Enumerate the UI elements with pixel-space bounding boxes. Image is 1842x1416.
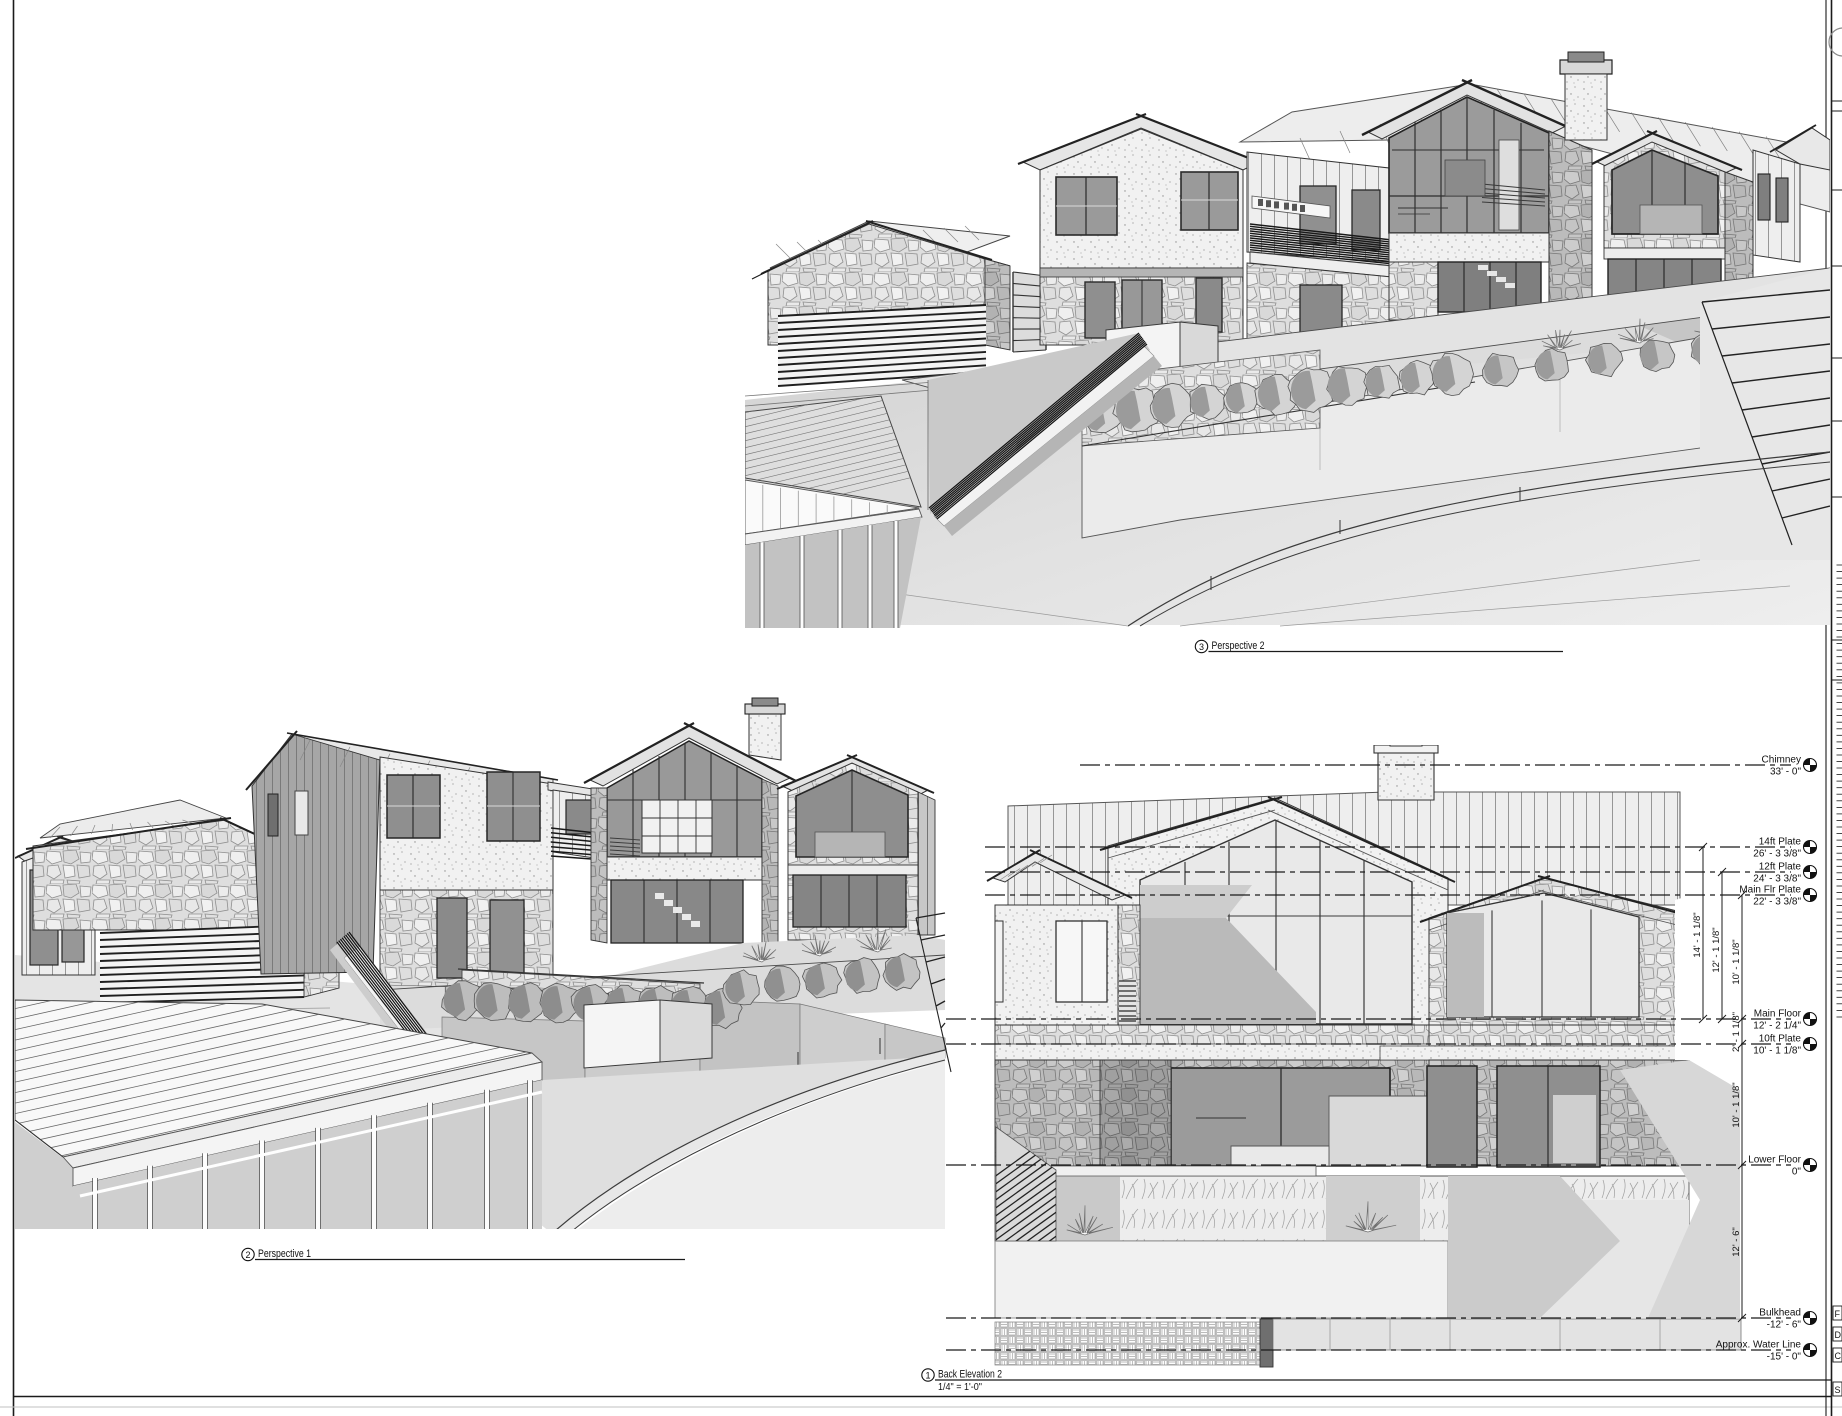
svg-text:10' - 1 1/8": 10' - 1 1/8" <box>1753 1046 1801 1057</box>
svg-text:12ft Plate: 12ft Plate <box>1759 862 1802 873</box>
svg-text:26' - 3 3/8": 26' - 3 3/8" <box>1753 849 1801 860</box>
svg-text:-12' - 6": -12' - 6" <box>1767 1320 1802 1331</box>
svg-text:14ft Plate: 14ft Plate <box>1759 837 1802 848</box>
svg-text:3: 3 <box>1199 642 1204 652</box>
svg-text:33' - 0": 33' - 0" <box>1770 767 1801 778</box>
svg-text:12' - 1 1/8": 12' - 1 1/8" <box>1711 927 1722 972</box>
svg-text:Lower Floor: Lower Floor <box>1748 1155 1801 1166</box>
svg-text:10ft Plate: 10ft Plate <box>1759 1034 1802 1045</box>
svg-text:2: 2 <box>245 1250 250 1260</box>
svg-text:Bulkhead: Bulkhead <box>1759 1308 1801 1319</box>
svg-text:24' - 3 3/8": 24' - 3 3/8" <box>1753 874 1801 885</box>
svg-text:-15' - 0": -15' - 0" <box>1767 1352 1802 1363</box>
svg-text:F: F <box>1835 1309 1841 1319</box>
svg-text:0": 0" <box>1792 1167 1802 1178</box>
svg-text:10' - 1 1/8": 10' - 1 1/8" <box>1731 1082 1742 1127</box>
svg-text:Perspective 1: Perspective 1 <box>258 1248 311 1260</box>
svg-text:12' - 2 1/4": 12' - 2 1/4" <box>1753 1021 1801 1032</box>
svg-text:14' - 1 1/8": 14' - 1 1/8" <box>1692 912 1703 957</box>
svg-text:Approx. Water Line: Approx. Water Line <box>1716 1340 1802 1351</box>
svg-text:22' - 3 3/8": 22' - 3 3/8" <box>1753 897 1801 908</box>
svg-text:Back Elevation 2: Back Elevation 2 <box>938 1369 1002 1381</box>
svg-text:1/4" = 1'-0": 1/4" = 1'-0" <box>938 1382 982 1393</box>
svg-text:Chimney: Chimney <box>1762 755 1801 766</box>
svg-text:Perspective 2: Perspective 2 <box>1212 640 1265 652</box>
svg-text:S: S <box>1835 1385 1841 1395</box>
svg-text:1: 1 <box>925 1371 930 1381</box>
svg-text:D: D <box>1835 1330 1842 1340</box>
svg-text:12' - 6": 12' - 6" <box>1731 1227 1742 1256</box>
svg-text:Main Flr Plate: Main Flr Plate <box>1739 885 1801 896</box>
svg-text:2' - 1 1/8": 2' - 1 1/8" <box>1731 1012 1742 1052</box>
svg-text:10' - 1 1/8": 10' - 1 1/8" <box>1731 939 1742 984</box>
svg-text:Main Floor: Main Floor <box>1754 1009 1802 1020</box>
svg-text:C: C <box>1835 1351 1842 1361</box>
